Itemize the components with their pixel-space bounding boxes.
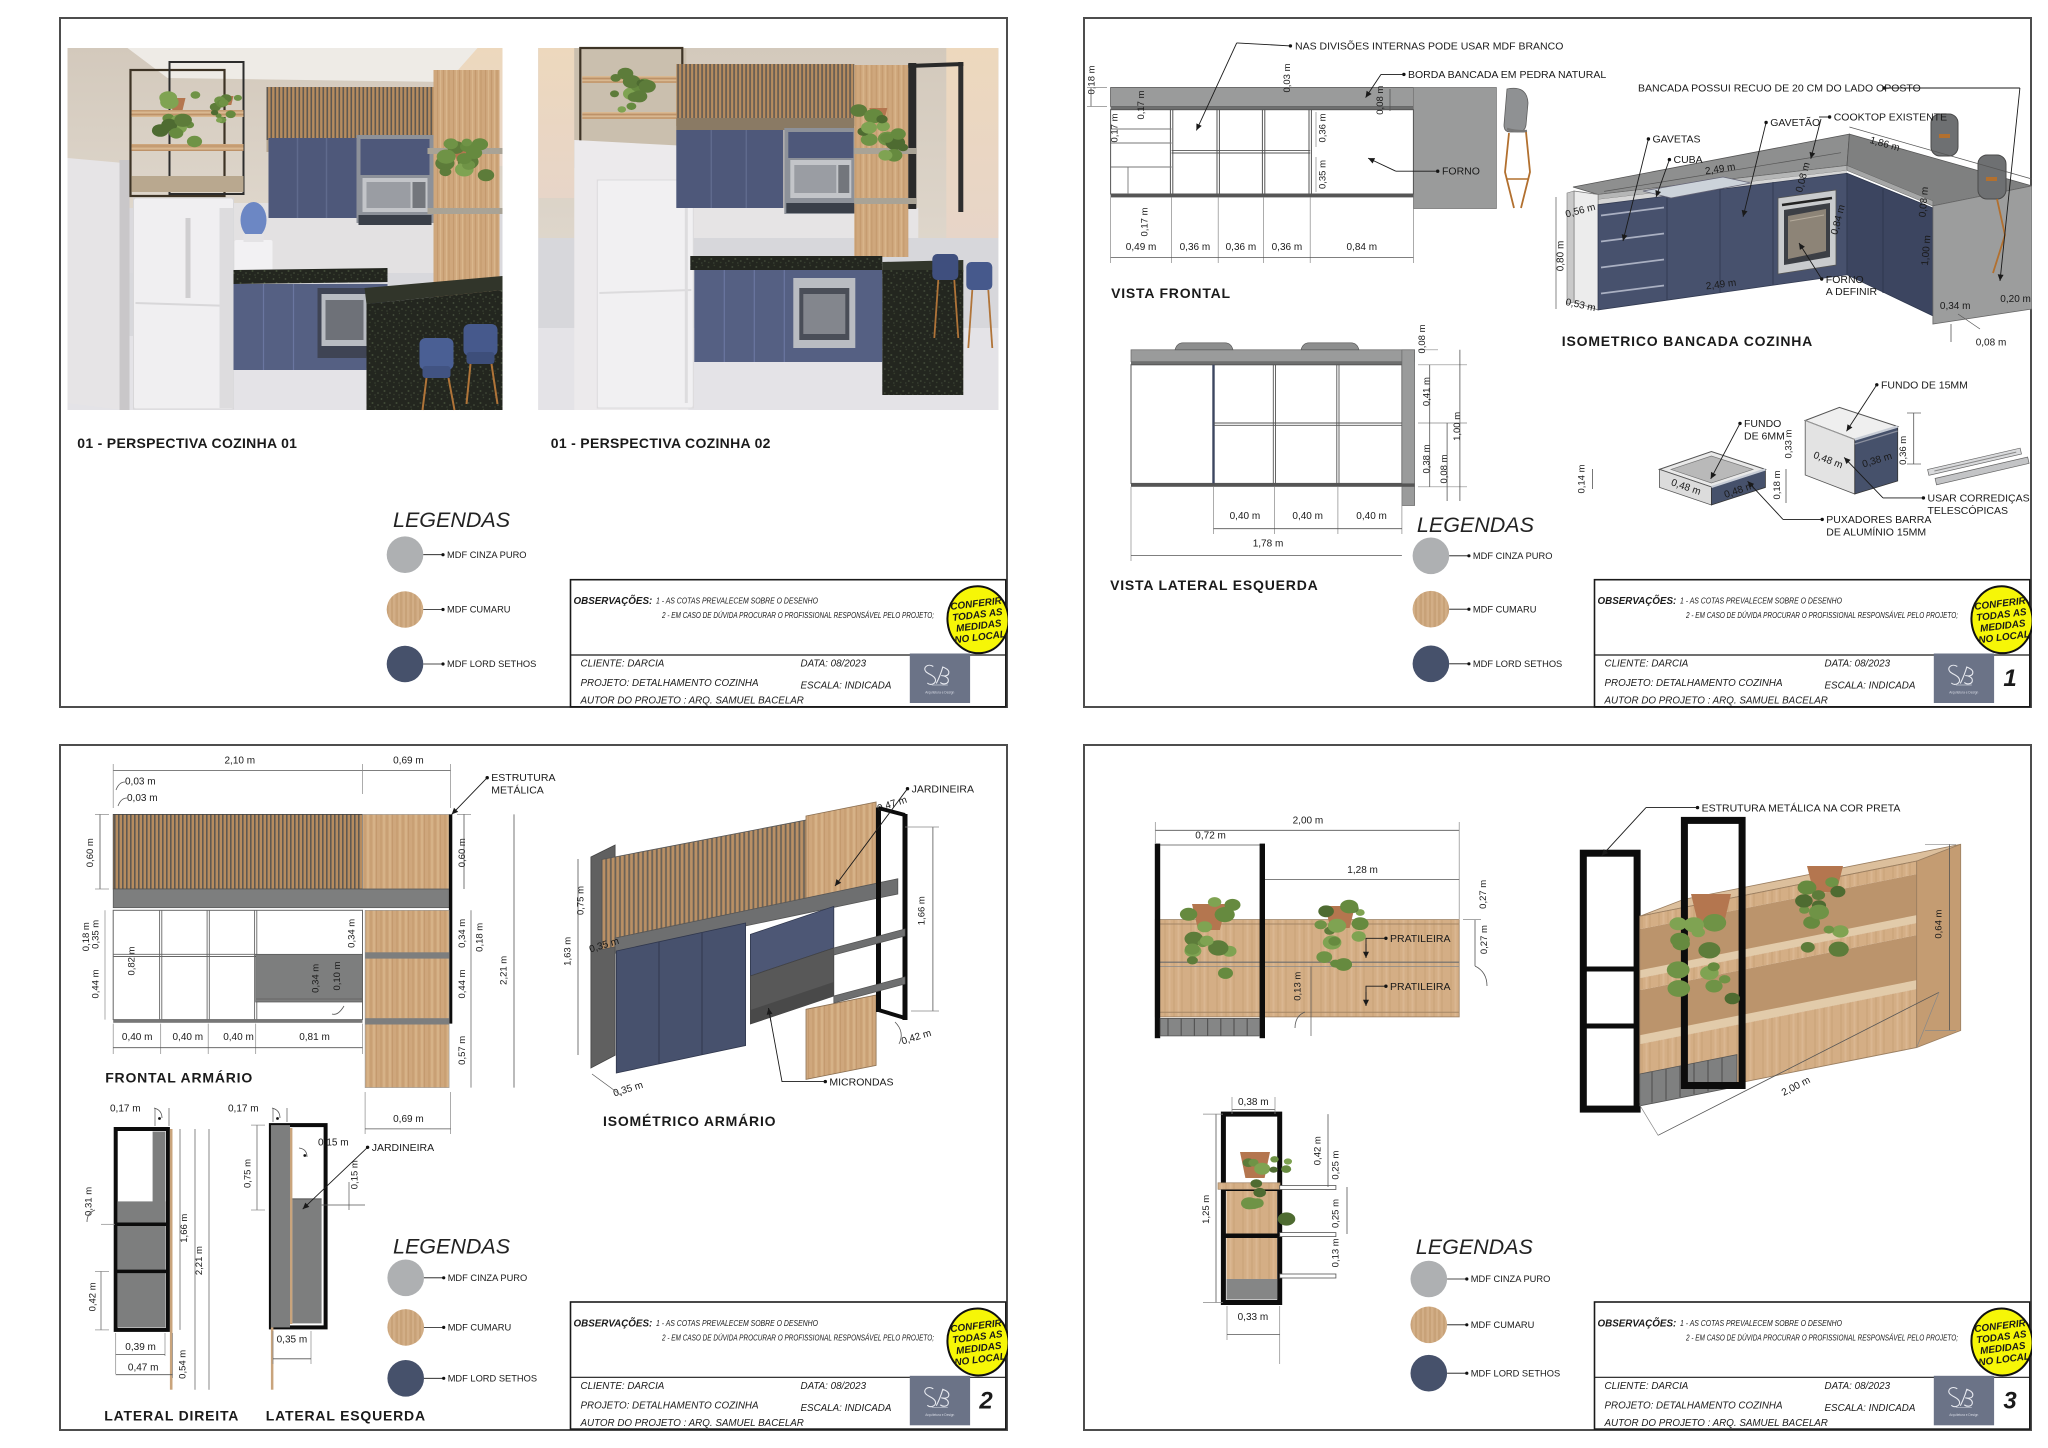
svg-text:0,17 m: 0,17 m: [110, 1104, 141, 1115]
svg-text:0,40 m: 0,40 m: [173, 1032, 204, 1043]
svg-text:0,34 m: 0,34 m: [1940, 301, 1971, 312]
svg-text:MDF CUMARU: MDF CUMARU: [447, 605, 511, 615]
svg-text:COOKTOP EXISTENTE: COOKTOP EXISTENTE: [1834, 112, 1947, 124]
svg-text:MDF LORD SETHOS: MDF LORD SETHOS: [447, 659, 536, 669]
svg-text:0,44 m: 0,44 m: [91, 969, 102, 998]
svg-text:DATA: 08/2023: DATA: 08/2023: [1825, 1381, 1891, 1392]
svg-text:1,78 m: 1,78 m: [1253, 539, 1284, 550]
svg-text:0,25 m: 0,25 m: [1331, 1150, 1342, 1179]
svg-text:0,27 m: 0,27 m: [1478, 880, 1489, 909]
svg-text:0,35 m: 0,35 m: [91, 920, 102, 949]
svg-text:0,72 m: 0,72 m: [1195, 830, 1226, 841]
svg-text:1,66 m: 1,66 m: [179, 1214, 190, 1243]
svg-text:0,25 m: 0,25 m: [1331, 1199, 1342, 1228]
svg-text:0,08 m: 0,08 m: [1439, 454, 1450, 483]
svg-text:0,34 m: 0,34 m: [346, 919, 357, 948]
svg-text:0,33 m: 0,33 m: [1238, 1312, 1269, 1323]
svg-text:0,13 m: 0,13 m: [1293, 972, 1304, 1001]
svg-text:0,81 m: 0,81 m: [299, 1032, 330, 1043]
svg-text:1 - AS COTAS PREVALECEM SOBRE: 1 - AS COTAS PREVALECEM SOBRE O DESENHO: [1680, 596, 1842, 606]
svg-text:0,42 m: 0,42 m: [1312, 1136, 1323, 1165]
svg-text:0,39 m: 0,39 m: [125, 1342, 156, 1353]
svg-text:MDF CINZA PURO: MDF CINZA PURO: [1471, 1274, 1551, 1284]
svg-text:2 - EM CASO DE DÚVIDA PROCURAR: 2 - EM CASO DE DÚVIDA PROCURAR O PROFISS…: [1685, 1333, 1958, 1343]
svg-text:AUTOR DO PROJETO : ARQ. SAMUEL: AUTOR DO PROJETO : ARQ. SAMUEL BACELAR: [1604, 1418, 1828, 1429]
svg-text:USAR CORREDIÇAS: USAR CORREDIÇAS: [1928, 493, 2030, 505]
svg-text:VISTA FRONTAL: VISTA FRONTAL: [1111, 285, 1231, 301]
svg-text:NAS DIVISÕES INTERNAS PODE USA: NAS DIVISÕES INTERNAS PODE USAR MDF BRAN…: [1295, 39, 1563, 52]
svg-text:PUXADORES BARRA: PUXADORES BARRA: [1826, 514, 1931, 526]
svg-text:0,40 m: 0,40 m: [1230, 511, 1261, 522]
svg-text:2,00 m: 2,00 m: [1293, 816, 1324, 827]
svg-text:0,18 m: 0,18 m: [1087, 65, 1098, 94]
svg-text:PROJETO: DETALHAMENTO COZINHA: PROJETO: DETALHAMENTO COZINHA: [1605, 1400, 1783, 1411]
svg-text:0,10 m: 0,10 m: [332, 961, 343, 990]
svg-text:JARDINEIRA: JARDINEIRA: [372, 1142, 434, 1154]
svg-text:0,36 m: 0,36 m: [1180, 242, 1211, 253]
svg-text:0,17 m: 0,17 m: [1109, 113, 1120, 142]
svg-text:0,42 m: 0,42 m: [87, 1282, 98, 1311]
svg-text:0,27 m: 0,27 m: [1479, 925, 1490, 954]
svg-text:ESCALA: INDICADA: ESCALA: INDICADA: [801, 681, 892, 692]
svg-text:0,60 m: 0,60 m: [85, 838, 96, 867]
svg-text:0,20 m: 0,20 m: [2000, 294, 2031, 305]
svg-text:LEGENDAS: LEGENDAS: [1417, 513, 1535, 537]
svg-text:Arquitetura e Design: Arquitetura e Design: [925, 1413, 954, 1417]
svg-text:DE 6MM: DE 6MM: [1744, 431, 1785, 443]
svg-text:LATERAL DIREITA: LATERAL DIREITA: [104, 1408, 239, 1424]
svg-text:CLIENTE: DARCIA: CLIENTE: DARCIA: [1605, 659, 1689, 670]
svg-text:0,36 m: 0,36 m: [1898, 436, 1909, 465]
svg-text:0,69 m: 0,69 m: [393, 756, 424, 767]
svg-text:0,64 m: 0,64 m: [1934, 909, 1945, 938]
svg-text:ESCALA: INDICADA: ESCALA: INDICADA: [801, 1403, 892, 1414]
svg-text:A DEFINIR: A DEFINIR: [1826, 286, 1878, 298]
svg-text:MDF LORD SETHOS: MDF LORD SETHOS: [1471, 1368, 1560, 1378]
svg-text:AUTOR DO PROJETO : ARQ. SAMUEL: AUTOR DO PROJETO : ARQ. SAMUEL BACELAR: [580, 1418, 804, 1429]
svg-text:BANCADA POSSUI RECUO DE 20 CM: BANCADA POSSUI RECUO DE 20 CM DO LADO OP…: [1638, 83, 1921, 95]
svg-text:ESCALA: INDICADA: ESCALA: INDICADA: [1825, 681, 1916, 692]
svg-text:ESCALA: INDICADA: ESCALA: INDICADA: [1825, 1403, 1916, 1414]
svg-text:OBSERVAÇÕES:: OBSERVAÇÕES:: [1598, 1319, 1677, 1330]
svg-text:FUNDO: FUNDO: [1744, 418, 1781, 430]
svg-text:0,15 m: 0,15 m: [349, 1160, 360, 1189]
svg-text:ESTRUTURA: ESTRUTURA: [491, 772, 555, 784]
svg-text:0,38 m: 0,38 m: [1422, 444, 1433, 473]
svg-text:PROJETO: DETALHAMENTO COZINHA: PROJETO: DETALHAMENTO COZINHA: [1605, 678, 1783, 689]
svg-text:MDF LORD SETHOS: MDF LORD SETHOS: [448, 1374, 537, 1384]
svg-text:MDF LORD SETHOS: MDF LORD SETHOS: [1473, 659, 1562, 669]
svg-text:1,63 m: 1,63 m: [562, 937, 573, 966]
svg-text:Arquitetura e Design: Arquitetura e Design: [925, 691, 954, 695]
svg-text:1 - AS COTAS PREVALECEM SOBRE: 1 - AS COTAS PREVALECEM SOBRE O DESENHO: [656, 1318, 818, 1328]
svg-text:ESTRUTURA METÁLICA NA COR PRET: ESTRUTURA METÁLICA NA COR PRETA: [1702, 801, 1901, 814]
svg-text:0,13 m: 0,13 m: [1331, 1238, 1342, 1267]
svg-text:METÁLICA: METÁLICA: [491, 784, 544, 797]
svg-text:0,18 m: 0,18 m: [474, 923, 485, 952]
svg-text:TELESCÓPICAS: TELESCÓPICAS: [1928, 504, 2009, 517]
svg-text:PROJETO: DETALHAMENTO COZINHA: PROJETO: DETALHAMENTO COZINHA: [581, 1400, 759, 1411]
svg-text:DE ALUMÍNIO 15MM: DE ALUMÍNIO 15MM: [1826, 526, 1926, 539]
svg-text:0,08 m: 0,08 m: [1417, 324, 1428, 353]
svg-text:AUTOR DO PROJETO : ARQ. SAMUEL: AUTOR DO PROJETO : ARQ. SAMUEL BACELAR: [1604, 696, 1828, 707]
svg-text:MDF CINZA PURO: MDF CINZA PURO: [447, 550, 527, 560]
svg-text:0,38 m: 0,38 m: [1238, 1097, 1269, 1108]
svg-text:0,18 m: 0,18 m: [1772, 470, 1783, 499]
svg-text:0,17 m: 0,17 m: [1140, 207, 1151, 236]
svg-text:GAVETAS: GAVETAS: [1653, 134, 1701, 146]
svg-text:0,34 m: 0,34 m: [457, 919, 468, 948]
svg-text:2,21 m: 2,21 m: [498, 956, 509, 985]
svg-text:VISTA LATERAL ESQUERDA: VISTA LATERAL ESQUERDA: [1110, 577, 1318, 593]
svg-text:01 - PERSPECTIVA COZINHA 02: 01 - PERSPECTIVA COZINHA 02: [551, 435, 771, 451]
svg-text:CLIENTE: DARCIA: CLIENTE: DARCIA: [581, 659, 665, 670]
svg-text:DATA: 08/2023: DATA: 08/2023: [1825, 659, 1891, 670]
svg-text:0,15 m: 0,15 m: [318, 1138, 349, 1149]
svg-text:DATA: 08/2023: DATA: 08/2023: [801, 1381, 867, 1392]
svg-text:0,08 m: 0,08 m: [1976, 337, 2007, 348]
svg-text:2 - EM CASO DE DÚVIDA PROCURAR: 2 - EM CASO DE DÚVIDA PROCURAR O PROFISS…: [1685, 610, 1958, 620]
svg-text:MDF CINZA PURO: MDF CINZA PURO: [1473, 551, 1553, 561]
svg-text:01 - PERSPECTIVA COZINHA 01: 01 - PERSPECTIVA COZINHA 01: [77, 435, 297, 451]
svg-text:0,75 m: 0,75 m: [576, 886, 587, 915]
svg-text:0,31 m: 0,31 m: [84, 1187, 95, 1216]
svg-text:0,17 m: 0,17 m: [228, 1104, 259, 1115]
svg-text:2,10 m: 2,10 m: [225, 756, 256, 767]
svg-text:2 - EM CASO DE DÚVIDA PROCURAR: 2 - EM CASO DE DÚVIDA PROCURAR O PROFISS…: [661, 1333, 934, 1343]
svg-text:0,35 m: 0,35 m: [1317, 160, 1328, 189]
svg-text:0,40 m: 0,40 m: [1356, 511, 1387, 522]
svg-text:ISOMETRICO BANCADA COZINHA: ISOMETRICO BANCADA COZINHA: [1562, 333, 1813, 349]
svg-text:0,17 m: 0,17 m: [1136, 90, 1147, 119]
svg-text:0,33 m: 0,33 m: [1784, 429, 1795, 458]
svg-text:MDF CUMARU: MDF CUMARU: [448, 1323, 512, 1333]
svg-text:Arquitetura e Design: Arquitetura e Design: [1949, 691, 1978, 695]
svg-text:LEGENDAS: LEGENDAS: [393, 1235, 511, 1259]
svg-text:LEGENDAS: LEGENDAS: [393, 508, 511, 532]
svg-text:MICRONDAS: MICRONDAS: [829, 1076, 893, 1088]
svg-text:0,40 m: 0,40 m: [122, 1032, 153, 1043]
svg-text:0,49 m: 0,49 m: [1126, 242, 1157, 253]
svg-text:0,03 m: 0,03 m: [125, 777, 156, 788]
svg-text:0,82 m: 0,82 m: [127, 946, 138, 975]
svg-text:1,25 m: 1,25 m: [1201, 1195, 1212, 1224]
svg-text:OBSERVAÇÕES:: OBSERVAÇÕES:: [574, 1319, 653, 1330]
svg-text:PRATILEIRA: PRATILEIRA: [1390, 933, 1451, 945]
svg-text:0,36 m: 0,36 m: [1272, 242, 1303, 253]
svg-text:1 - AS COTAS PREVALECEM SOBRE: 1 - AS COTAS PREVALECEM SOBRE O DESENHO: [656, 596, 818, 606]
svg-text:0,03 m: 0,03 m: [1282, 63, 1293, 92]
svg-text:JARDINEIRA: JARDINEIRA: [912, 783, 974, 795]
svg-text:0,34 m: 0,34 m: [310, 964, 321, 993]
svg-text:0,47 m: 0,47 m: [128, 1362, 159, 1373]
svg-text:3: 3: [2003, 1387, 2017, 1414]
svg-text:CLIENTE: DARCIA: CLIENTE: DARCIA: [1605, 1381, 1689, 1392]
svg-text:FORNO: FORNO: [1826, 274, 1864, 286]
svg-text:0,75 m: 0,75 m: [243, 1159, 254, 1188]
svg-text:MDF CINZA PURO: MDF CINZA PURO: [448, 1273, 528, 1283]
svg-text:2 - EM CASO DE DÚVIDA PROCURAR: 2 - EM CASO DE DÚVIDA PROCURAR O PROFISS…: [661, 610, 934, 620]
svg-text:1,66 m: 1,66 m: [916, 896, 927, 925]
svg-text:FUNDO DE 15MM: FUNDO DE 15MM: [1881, 380, 1968, 392]
svg-text:LATERAL ESQUERDA: LATERAL ESQUERDA: [266, 1408, 426, 1424]
svg-text:FRONTAL ARMÁRIO: FRONTAL ARMÁRIO: [105, 1069, 253, 1085]
svg-text:0,69 m: 0,69 m: [393, 1114, 424, 1125]
svg-text:MDF CUMARU: MDF CUMARU: [1471, 1320, 1535, 1330]
svg-text:BORDA BANCADA EM PEDRA NATURAL: BORDA BANCADA EM PEDRA NATURAL: [1408, 69, 1606, 81]
svg-text:CUBA: CUBA: [1674, 154, 1703, 166]
svg-text:0,40 m: 0,40 m: [223, 1032, 254, 1043]
svg-text:1,00 m: 1,00 m: [1452, 412, 1463, 441]
svg-text:0,44 m: 0,44 m: [457, 969, 468, 998]
svg-text:PROJETO: DETALHAMENTO COZINHA: PROJETO: DETALHAMENTO COZINHA: [581, 678, 759, 689]
svg-text:MDF CUMARU: MDF CUMARU: [1473, 604, 1537, 614]
svg-text:0,60 m: 0,60 m: [457, 838, 468, 867]
svg-text:CLIENTE: DARCIA: CLIENTE: DARCIA: [581, 1381, 665, 1392]
svg-text:2,21 m: 2,21 m: [194, 1246, 205, 1275]
svg-text:1 - AS COTAS PREVALECEM SOBRE: 1 - AS COTAS PREVALECEM SOBRE O DESENHO: [1680, 1318, 1842, 1328]
svg-text:2: 2: [978, 1387, 993, 1414]
svg-text:1,28 m: 1,28 m: [1347, 865, 1378, 876]
svg-text:0,57 m: 0,57 m: [457, 1036, 468, 1065]
svg-text:FORNO: FORNO: [1442, 166, 1480, 178]
svg-text:0,84 m: 0,84 m: [1347, 242, 1378, 253]
svg-text:ISOMÉTRICO ARMÁRIO: ISOMÉTRICO ARMÁRIO: [603, 1113, 776, 1129]
svg-text:0,54 m: 0,54 m: [178, 1350, 189, 1379]
svg-text:OBSERVAÇÕES:: OBSERVAÇÕES:: [574, 596, 653, 607]
svg-text:0,80 m: 0,80 m: [1556, 241, 1567, 272]
svg-text:0,35 m: 0,35 m: [277, 1334, 308, 1345]
svg-text:0,36 m: 0,36 m: [1317, 113, 1328, 142]
svg-text:0,41 m: 0,41 m: [1422, 377, 1433, 406]
svg-text:0,36 m: 0,36 m: [1226, 242, 1257, 253]
svg-text:0,40 m: 0,40 m: [1292, 511, 1323, 522]
svg-text:0,08 m: 0,08 m: [1375, 86, 1386, 115]
svg-text:GAVETÃO: GAVETÃO: [1770, 116, 1820, 129]
svg-text:0,03 m: 0,03 m: [127, 793, 158, 804]
svg-text:PRATILEIRA: PRATILEIRA: [1390, 981, 1451, 993]
svg-text:OBSERVAÇÕES:: OBSERVAÇÕES:: [1598, 596, 1677, 607]
svg-text:Arquitetura e Design: Arquitetura e Design: [1949, 1413, 1978, 1417]
svg-text:1: 1: [2003, 665, 2016, 692]
svg-text:AUTOR DO PROJETO : ARQ. SAMUEL: AUTOR DO PROJETO : ARQ. SAMUEL BACELAR: [580, 696, 804, 707]
svg-text:DATA: 08/2023: DATA: 08/2023: [801, 659, 867, 670]
svg-text:LEGENDAS: LEGENDAS: [1416, 1235, 1534, 1259]
svg-text:0,14 m: 0,14 m: [1576, 464, 1587, 493]
